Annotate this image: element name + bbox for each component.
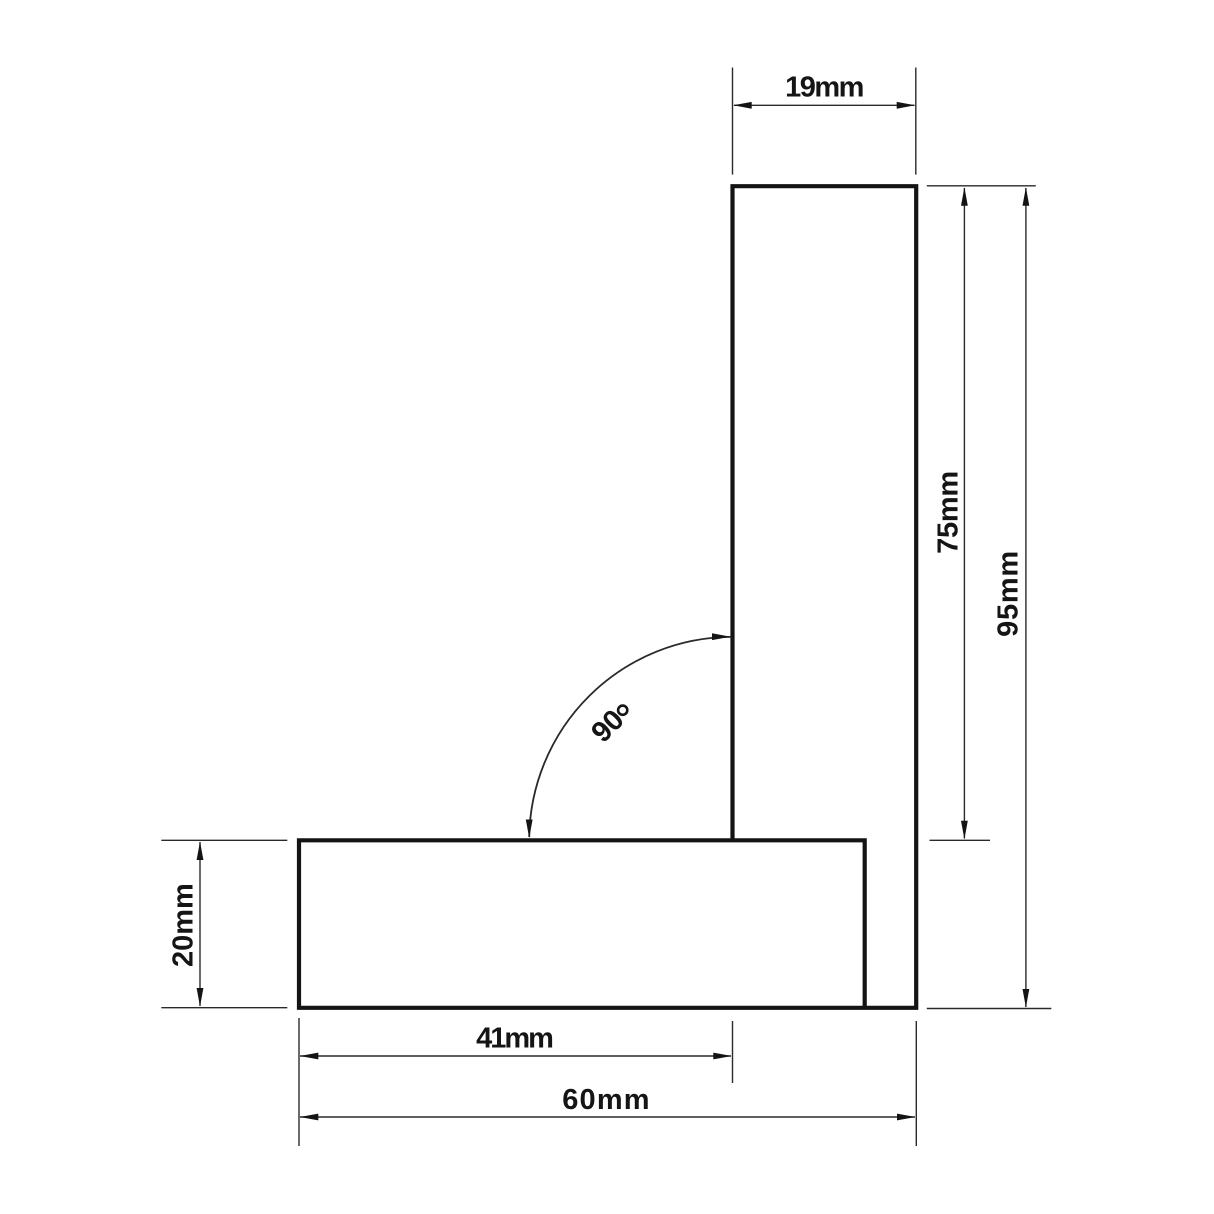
svg-text:60mm: 60mm: [562, 1084, 650, 1116]
svg-text:19mm: 19mm: [785, 71, 863, 103]
svg-text:20mm: 20mm: [168, 883, 200, 967]
svg-text:95mm: 95mm: [992, 550, 1024, 637]
svg-text:41mm: 41mm: [476, 1023, 552, 1055]
svg-text:75mm: 75mm: [932, 471, 964, 554]
